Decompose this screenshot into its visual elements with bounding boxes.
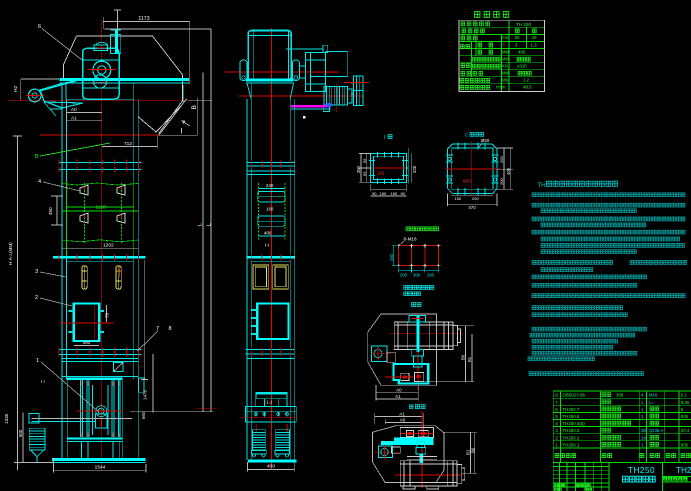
svg-text:4: 4 xyxy=(38,179,41,185)
svg-text:200: 200 xyxy=(499,178,504,185)
svg-text:L: L xyxy=(198,223,204,226)
svg-text:≥320: ≥320 xyxy=(517,64,527,69)
svg-text:L: L xyxy=(207,223,213,226)
svg-text:TH2: TH2 xyxy=(676,466,691,475)
svg-text:1.3: 1.3 xyxy=(531,42,538,47)
svg-text:200: 200 xyxy=(472,196,479,201)
svg-text:835: 835 xyxy=(681,414,689,419)
svg-text:150: 150 xyxy=(455,196,462,201)
svg-text:M16: M16 xyxy=(649,393,658,398)
svg-text:55: 55 xyxy=(362,158,367,163)
svg-text:7: 7 xyxy=(555,400,558,405)
svg-text:l: l xyxy=(504,42,505,47)
svg-text:1.2: 1.2 xyxy=(523,78,530,83)
svg-text:M/s: M/s xyxy=(502,78,509,83)
svg-text:MM: MM xyxy=(502,56,509,61)
svg-text:A0: A0 xyxy=(400,418,406,423)
svg-text:GB5027-86: GB5027-86 xyxy=(563,393,586,398)
svg-text:Ø40: Ø40 xyxy=(481,138,490,143)
svg-text:TH250.3: TH250.3 xyxy=(563,428,580,433)
svg-text:240: 240 xyxy=(266,183,274,188)
svg-text:mm: mm xyxy=(502,35,509,40)
svg-text:B0: B0 xyxy=(461,354,466,360)
svg-text:480: 480 xyxy=(83,340,91,345)
svg-text:6: 6 xyxy=(38,24,41,30)
svg-text:TH250.7: TH250.7 xyxy=(563,407,580,412)
svg-text:30: 30 xyxy=(515,35,520,40)
svg-text:75: 75 xyxy=(105,313,110,318)
svg-text:0.1: 0.1 xyxy=(681,393,687,398)
svg-text:142: 142 xyxy=(377,171,385,176)
svg-text:18: 18 xyxy=(641,435,646,440)
svg-text:200: 200 xyxy=(499,156,504,163)
svg-text:48.5: 48.5 xyxy=(523,85,532,90)
svg-text:200: 200 xyxy=(427,272,435,277)
svg-text:308: 308 xyxy=(616,393,624,398)
svg-text:1173: 1173 xyxy=(138,16,149,22)
svg-text:8: 8 xyxy=(555,393,558,398)
svg-text:TH: TH xyxy=(538,182,546,189)
svg-text:1120: 1120 xyxy=(96,205,107,211)
svg-text:8: 8 xyxy=(169,326,172,332)
svg-text:H·A·L(MM): H·A·L(MM) xyxy=(8,242,13,265)
svg-text:TH250.6: TH250.6 xyxy=(563,414,580,419)
svg-text:400: 400 xyxy=(518,49,526,54)
svg-text:150: 150 xyxy=(391,191,398,196)
svg-text:B: B xyxy=(35,154,39,160)
svg-text:TH250: TH250 xyxy=(628,466,655,475)
svg-text:TH250.1: TH250.1 xyxy=(563,442,580,447)
svg-text:TH 250: TH 250 xyxy=(516,22,532,27)
svg-text:2: 2 xyxy=(35,295,38,301)
svg-text:3: 3 xyxy=(35,269,38,275)
svg-text:450: 450 xyxy=(48,207,53,215)
svg-text:1: 1 xyxy=(36,358,39,364)
svg-text:A1: A1 xyxy=(399,411,405,416)
svg-text:L=: L= xyxy=(649,400,654,405)
svg-text:835: 835 xyxy=(681,442,689,447)
svg-text:350: 350 xyxy=(356,165,361,173)
svg-text:A0: A0 xyxy=(396,387,402,392)
svg-text:B1: B1 xyxy=(467,356,472,362)
svg-text:470: 470 xyxy=(468,205,476,210)
svg-text:A1: A1 xyxy=(71,116,77,121)
svg-text:MM: MM xyxy=(502,71,509,76)
svg-text:I-I: I-I xyxy=(265,243,269,248)
svg-text:3: 3 xyxy=(555,428,558,433)
svg-text:65: 65 xyxy=(362,171,367,176)
svg-text:r/min: r/min xyxy=(496,85,506,90)
svg-text:TH250.4(5): TH250.4(5) xyxy=(563,421,586,426)
svg-text:A0: A0 xyxy=(71,107,77,112)
svg-text:1: 1 xyxy=(555,442,558,447)
svg-text:4: 4 xyxy=(555,421,558,426)
svg-text:5: 5 xyxy=(555,414,558,419)
svg-text:560: 560 xyxy=(141,411,146,419)
svg-text:1335: 1335 xyxy=(4,413,9,424)
svg-text:2: 2 xyxy=(555,435,558,440)
svg-text:400: 400 xyxy=(506,167,511,175)
svg-text:500: 500 xyxy=(18,429,23,437)
svg-text:Q235-A: Q235-A xyxy=(649,428,664,433)
svg-text:400: 400 xyxy=(267,464,275,470)
svg-text:1-1: 1-1 xyxy=(266,400,273,405)
svg-text:8-M16: 8-M16 xyxy=(404,236,417,241)
svg-text:200: 200 xyxy=(400,272,408,277)
svg-text:20.4: 20.4 xyxy=(681,428,690,433)
svg-text:600: 600 xyxy=(463,179,471,184)
svg-text:A1: A1 xyxy=(395,394,401,399)
svg-text:40: 40 xyxy=(532,35,537,40)
svg-text:1544: 1544 xyxy=(95,465,106,471)
svg-text:MM: MM xyxy=(502,49,509,54)
svg-text:9.06: 9.06 xyxy=(681,400,690,405)
svg-text:1202: 1202 xyxy=(103,243,114,249)
svg-text:712: 712 xyxy=(124,141,132,147)
svg-text:450: 450 xyxy=(389,253,394,261)
svg-text:320: 320 xyxy=(412,165,417,173)
svg-text:300: 300 xyxy=(413,272,421,277)
svg-text:150: 150 xyxy=(380,191,387,196)
svg-text:I I: I I xyxy=(41,379,45,384)
svg-text:160: 160 xyxy=(266,207,274,212)
svg-text:TH250.2: TH250.2 xyxy=(563,435,580,440)
svg-text:1475: 1475 xyxy=(143,390,148,400)
svg-text:400: 400 xyxy=(264,231,272,236)
svg-text:90: 90 xyxy=(372,191,377,196)
svg-text:36: 36 xyxy=(641,428,646,433)
svg-text:B0: B0 xyxy=(470,447,475,453)
svg-text:B: B xyxy=(191,105,198,109)
svg-text:90: 90 xyxy=(401,191,406,196)
svg-text:H2: H2 xyxy=(13,86,19,92)
svg-text:6: 6 xyxy=(555,407,558,412)
svg-text:I: I xyxy=(384,135,385,141)
svg-text:KN: KN xyxy=(502,64,508,69)
